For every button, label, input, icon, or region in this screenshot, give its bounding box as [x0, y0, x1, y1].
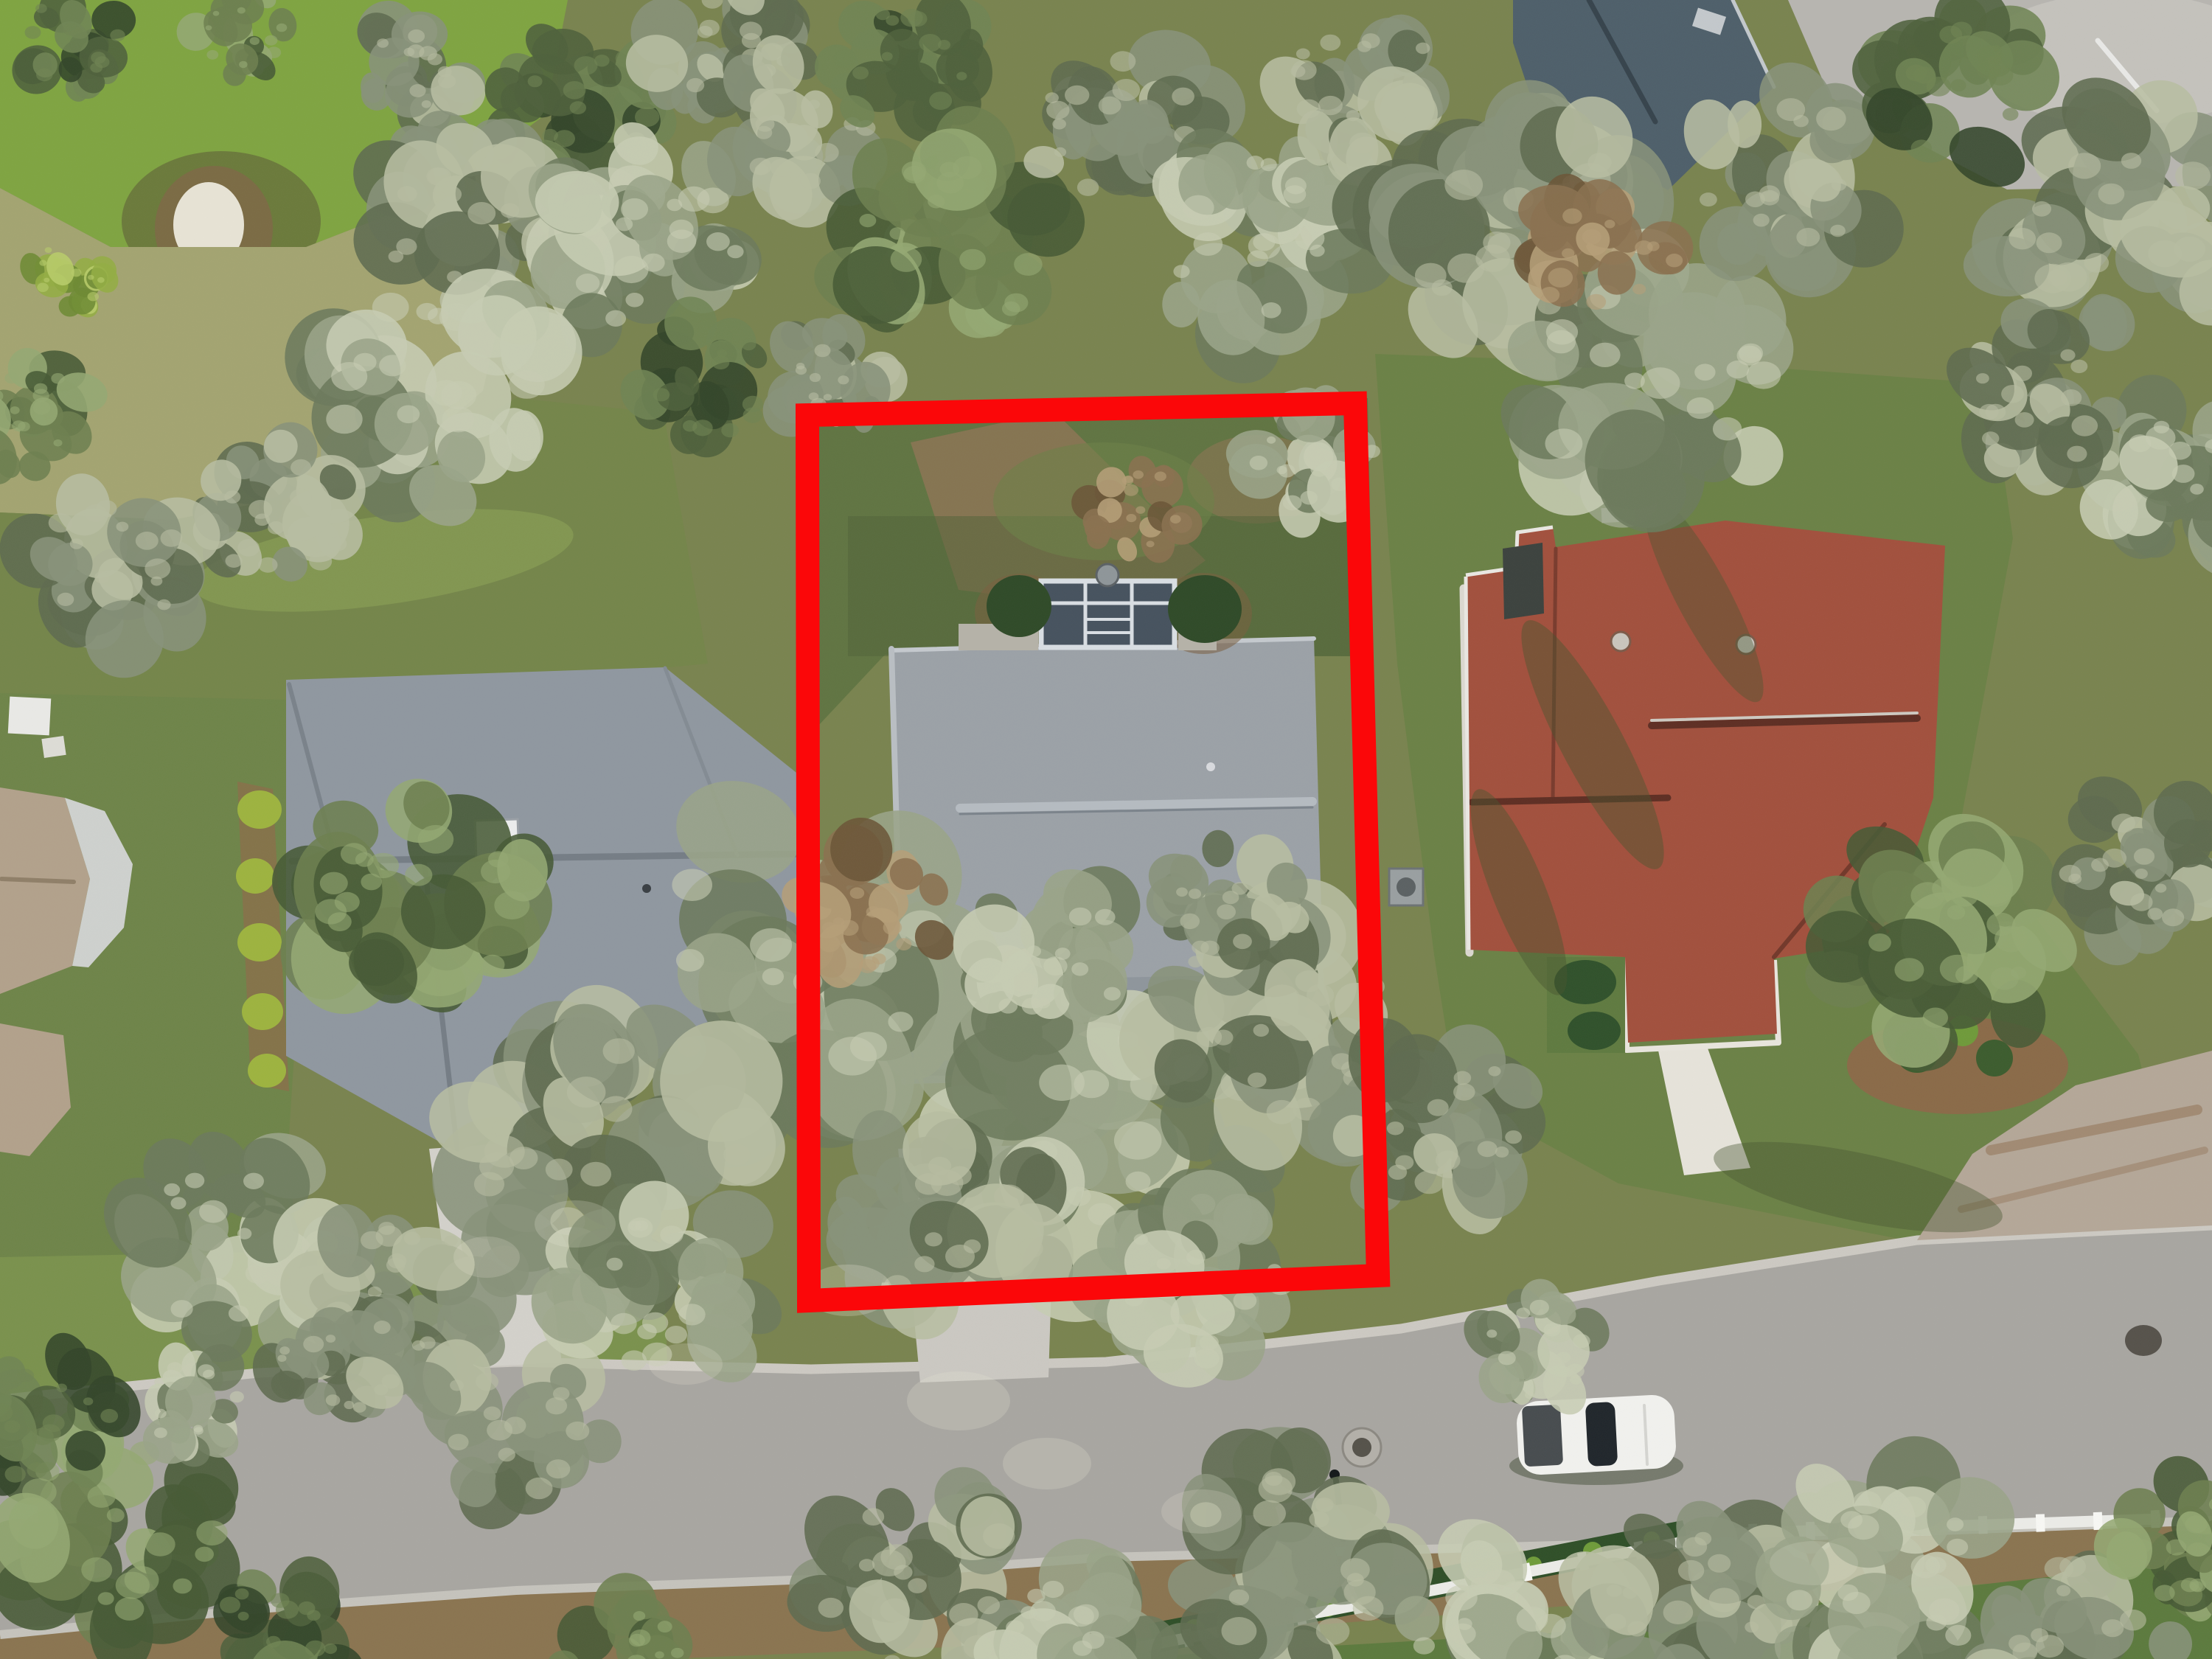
aerial-photo-canvas: [0, 0, 2212, 1659]
aerial-photo: [0, 0, 2212, 1659]
film-grain-overlay: [0, 0, 2212, 1659]
